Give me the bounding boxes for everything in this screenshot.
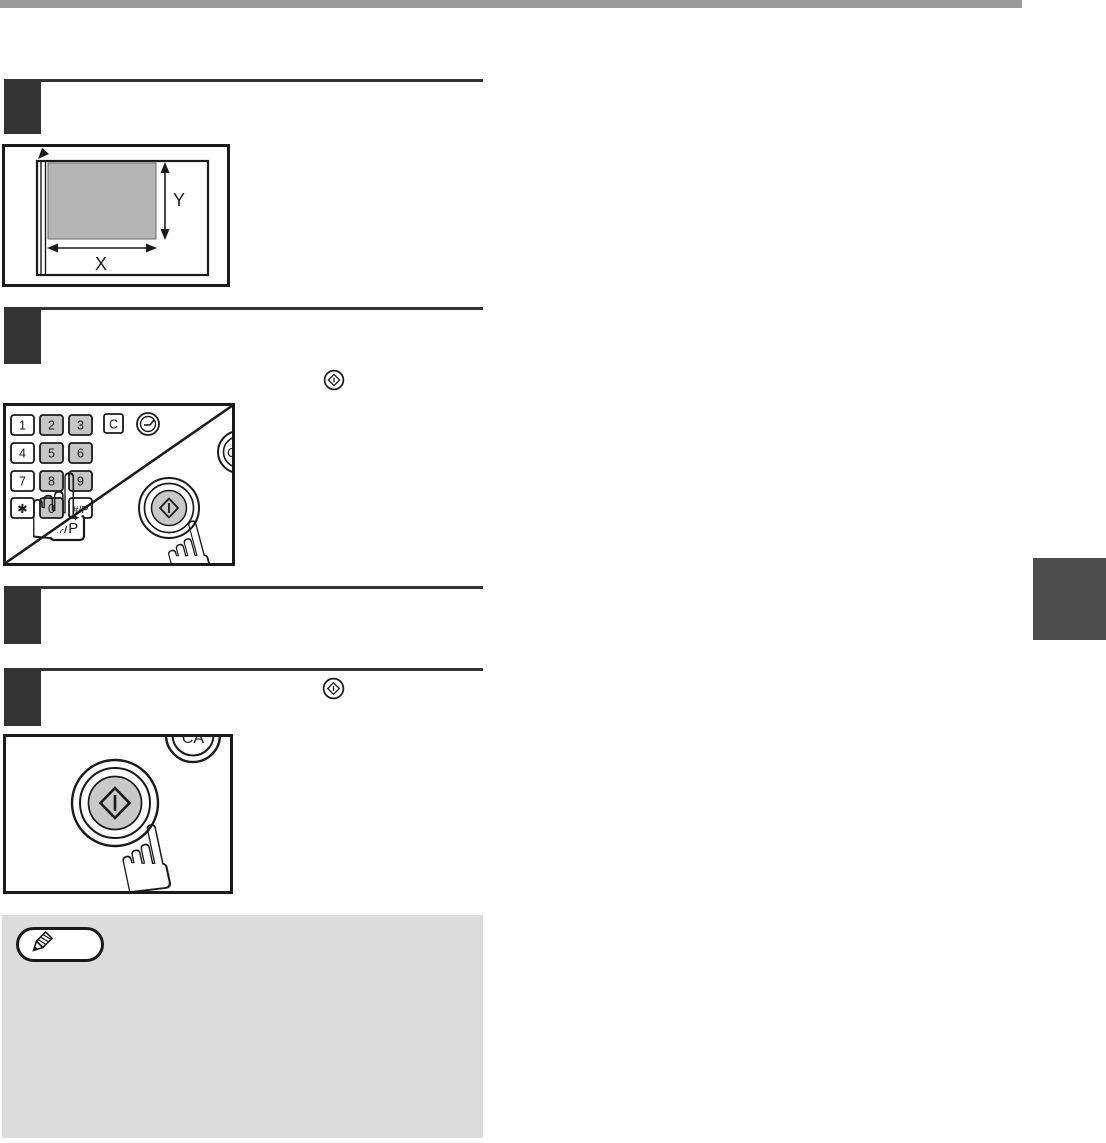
note-badge xyxy=(16,927,104,962)
x-dimension-label: X xyxy=(95,254,107,274)
manual-page: Y X xyxy=(0,0,1106,1143)
svg-text:7: 7 xyxy=(19,475,26,489)
svg-text:1: 1 xyxy=(19,419,26,433)
step-1-marker xyxy=(4,79,41,134)
original-document xyxy=(48,163,156,239)
note-pencil-icon xyxy=(25,930,55,960)
pointing-hand-icon: ☝ xyxy=(26,454,84,564)
step-2-rule xyxy=(4,307,483,310)
note-box xyxy=(2,915,483,1138)
svg-text:3: 3 xyxy=(77,419,84,433)
step-1-rule xyxy=(4,79,483,82)
svg-text:C: C xyxy=(109,418,118,432)
start-key-inline-icon xyxy=(323,369,345,391)
step-4-rule xyxy=(4,668,483,671)
platen-illustration: Y X xyxy=(2,144,230,287)
page-header-bar xyxy=(0,0,1022,8)
step-3-rule xyxy=(4,586,483,589)
chapter-side-tab xyxy=(1033,558,1106,640)
step-4-marker xyxy=(4,668,41,726)
y-dimension-label: Y xyxy=(173,190,185,210)
step-3-marker xyxy=(4,586,41,644)
start-key-inline-icon xyxy=(322,677,345,700)
start-press-illustration: CA ☝ xyxy=(3,734,233,894)
keypad-illustration: 1 2 3 4 5 6 7 8 9 ✱ 0 #/P C xyxy=(3,403,235,566)
svg-text:2: 2 xyxy=(48,419,55,433)
step-2-marker xyxy=(4,307,41,364)
svg-text:4: 4 xyxy=(19,447,26,461)
audit-clear-key-icon xyxy=(137,413,159,435)
